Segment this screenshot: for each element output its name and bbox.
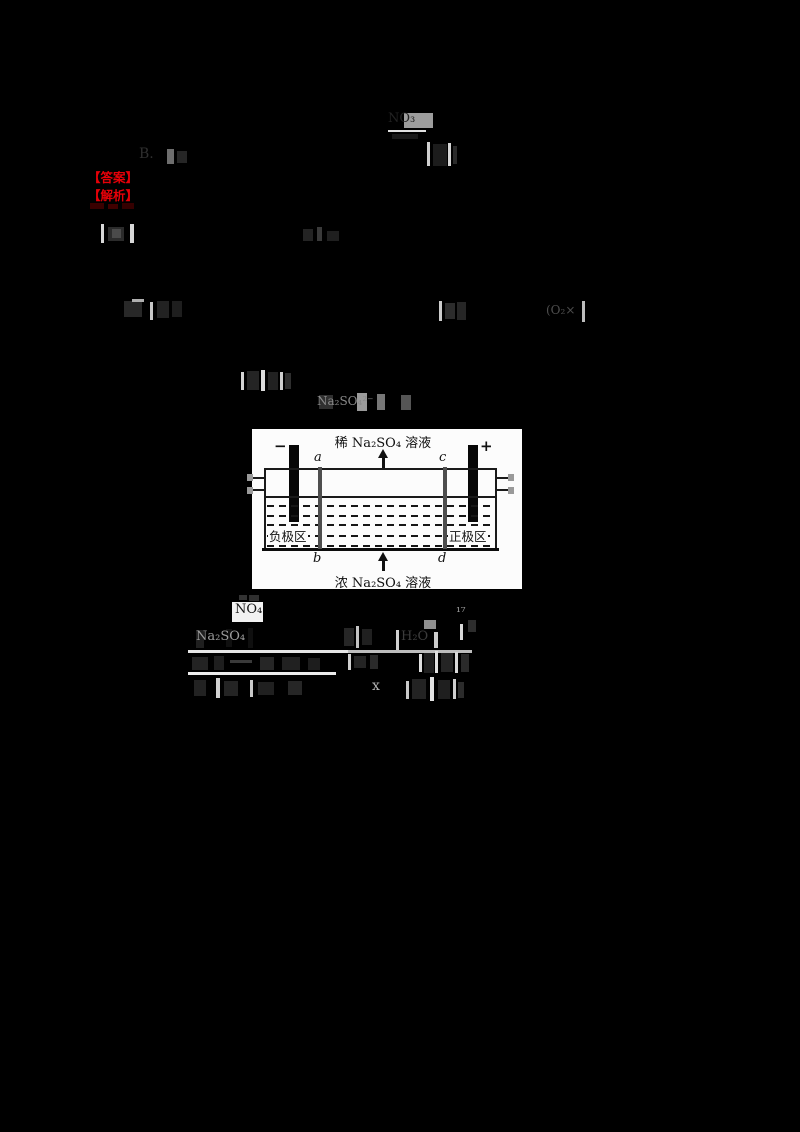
right-tube-cap-top <box>508 474 514 481</box>
fragment-mark <box>214 656 224 670</box>
up-arrow-icon <box>378 449 388 458</box>
fragment-mark <box>424 620 436 629</box>
fragment-mark <box>458 682 464 698</box>
fragment-mark <box>448 143 451 166</box>
tank-top-line <box>264 468 497 470</box>
fragment-mark <box>406 681 409 699</box>
fragment-mark <box>317 227 322 241</box>
answer-analysis-block: 【答案】 【解析】 <box>88 169 138 204</box>
membrane-label-c: c <box>439 450 446 465</box>
fragment-mark <box>172 301 182 317</box>
tank-bottom-line <box>262 548 499 551</box>
text-fragment: ¹⁷ <box>456 606 482 642</box>
membrane-label-d: d <box>438 551 446 566</box>
fragment-mark <box>401 395 411 410</box>
fragment-text: (O₂× <box>546 304 575 317</box>
fragment-mark <box>101 224 104 243</box>
text-fragment <box>90 203 134 210</box>
analysis-label: 【解析】 <box>88 187 138 205</box>
fragment-mark <box>388 130 426 132</box>
fragment-mark <box>108 204 118 209</box>
fragment-mark <box>468 620 476 632</box>
fragment-mark <box>455 652 458 673</box>
liquid-dash-row <box>267 545 494 547</box>
fragment-mark <box>132 299 144 302</box>
text-fragment <box>425 140 459 168</box>
fragment-mark <box>258 682 274 695</box>
fragment-mark <box>288 681 302 695</box>
fragment-mark <box>392 134 418 139</box>
liquid-dash-row <box>267 515 494 517</box>
fragment-mark <box>396 630 399 650</box>
text-fragment: H₂O <box>394 620 440 652</box>
text-fragment <box>194 678 316 700</box>
right-electrode <box>468 445 478 522</box>
fragment-mark <box>424 653 434 673</box>
fragment-mark <box>356 626 359 648</box>
fragment-mark <box>370 655 378 669</box>
fragment-mark <box>377 394 385 410</box>
fragment-mark <box>344 628 354 646</box>
fragment-mark <box>460 624 463 640</box>
fragment-mark <box>239 595 247 600</box>
fragment-mark <box>216 678 220 698</box>
text-fragment: (O₂× <box>546 301 588 324</box>
fragment-mark <box>434 632 438 648</box>
text-fragment: B. <box>139 147 187 167</box>
answer-label: 【答案】 <box>88 169 138 187</box>
fragment-mark <box>285 373 291 389</box>
text-fragment: Na₂SO₄²⁻ <box>317 393 413 413</box>
membrane-label-a: a <box>314 450 322 465</box>
fragment-text: x <box>372 679 380 694</box>
water-surface-line <box>264 496 497 498</box>
fragment-mark <box>412 679 426 699</box>
text-fragment: NO₃ <box>388 112 434 142</box>
fragment-mark <box>282 657 300 670</box>
electrolysis-diagram: 稀 Na₂SO₄ 溶液 − + a c b d <box>252 429 522 589</box>
text-fragment <box>439 301 469 323</box>
bottom-up-arrow-shaft <box>382 561 385 571</box>
fragment-mark <box>461 654 469 672</box>
text-fragment <box>419 651 471 675</box>
text-fragment <box>239 370 293 392</box>
fragment-mark <box>445 303 455 319</box>
positive-region-label: 正极区 <box>448 526 488 545</box>
fragment-mark <box>457 302 466 320</box>
fragment-mark <box>192 657 208 670</box>
fragment-mark <box>303 229 313 241</box>
fragment-mark <box>419 654 422 672</box>
fragment-mark <box>362 629 372 645</box>
fragment-mark <box>453 679 456 699</box>
fragment-mark <box>435 651 438 673</box>
fragment-mark <box>453 146 457 164</box>
fragment-mark <box>430 677 434 701</box>
tank-left-wall <box>264 468 266 551</box>
fragment-mark <box>438 680 450 699</box>
fragment-mark <box>280 372 283 390</box>
fragment-mark <box>427 142 430 166</box>
fragment-mark <box>348 654 351 670</box>
fragment-text: Na₂SO₄ <box>196 630 245 644</box>
fragment-mark <box>124 301 142 317</box>
text-fragment <box>303 227 343 244</box>
fragment-text: NO₄ <box>235 603 262 617</box>
fragment-mark <box>157 301 169 318</box>
liquid-dash-row <box>267 505 494 507</box>
text-fragment <box>406 677 464 703</box>
right-membrane <box>443 467 448 549</box>
left-tube-cap-top <box>247 474 253 481</box>
fragment-mark <box>249 595 259 601</box>
fragment-mark <box>261 370 265 391</box>
text-fragment: Na₂SO₄ <box>196 628 268 650</box>
plus-sign: + <box>480 437 493 455</box>
fragment-mark <box>439 301 442 321</box>
text-fragment <box>190 655 340 672</box>
left-tube-cap-bottom <box>247 487 253 494</box>
text-fragment <box>188 672 336 676</box>
text-fragment: x <box>372 679 394 697</box>
fragment-mark <box>150 302 153 320</box>
fragment-mark <box>177 151 187 163</box>
text-fragment <box>344 624 374 650</box>
fragment-mark <box>327 231 339 241</box>
text-fragment <box>100 224 138 244</box>
concentrated-solution-label: 浓 Na₂SO₄ 溶液 <box>335 572 431 591</box>
fragment-mark <box>112 229 121 238</box>
fragment-mark <box>247 371 259 390</box>
fragment-mark <box>130 224 134 243</box>
minus-sign: − <box>274 437 287 455</box>
up-arrow-shaft <box>382 458 385 468</box>
fragment-mark <box>248 628 253 648</box>
fragment-mark <box>268 372 278 390</box>
fragment-mark <box>230 660 252 663</box>
fragment-mark <box>194 680 206 696</box>
fragment-text: ¹⁷ <box>456 606 466 619</box>
text-fragment <box>124 299 184 322</box>
fragment-text: H₂O <box>401 630 428 644</box>
fragment-mark <box>354 656 366 668</box>
fragment-text: B. <box>139 147 154 162</box>
fragment-mark <box>250 680 253 697</box>
fragment-mark <box>441 653 453 672</box>
fragment-text: NO₃ <box>388 112 415 126</box>
left-membrane <box>318 467 323 549</box>
negative-region-label: 负极区 <box>268 526 308 545</box>
left-electrode <box>289 445 299 522</box>
tank-right-wall <box>495 468 497 551</box>
fragment-mark <box>90 203 104 209</box>
fragment-text: Na₂SO₄²⁻ <box>317 395 373 408</box>
fragment-mark <box>224 681 238 696</box>
text-fragment <box>348 653 382 671</box>
fragment-mark <box>260 657 274 670</box>
fragment-mark <box>167 149 174 164</box>
fragment-mark <box>241 372 244 390</box>
fragment-mark <box>188 672 336 675</box>
fragment-mark <box>582 301 585 322</box>
bottom-up-arrow-icon <box>378 552 388 561</box>
text-fragment: NO₄ <box>231 595 267 623</box>
document-page: 【答案】 【解析】 NO₃B.(O₂×Na₂SO₄²⁻NO₄Na₂SO₄H₂O¹… <box>0 0 800 1132</box>
fragment-mark <box>122 203 134 209</box>
right-tube-cap-bottom <box>508 487 514 494</box>
fragment-mark <box>308 658 320 670</box>
fragment-mark <box>433 144 447 166</box>
membrane-label-b: b <box>313 551 321 566</box>
